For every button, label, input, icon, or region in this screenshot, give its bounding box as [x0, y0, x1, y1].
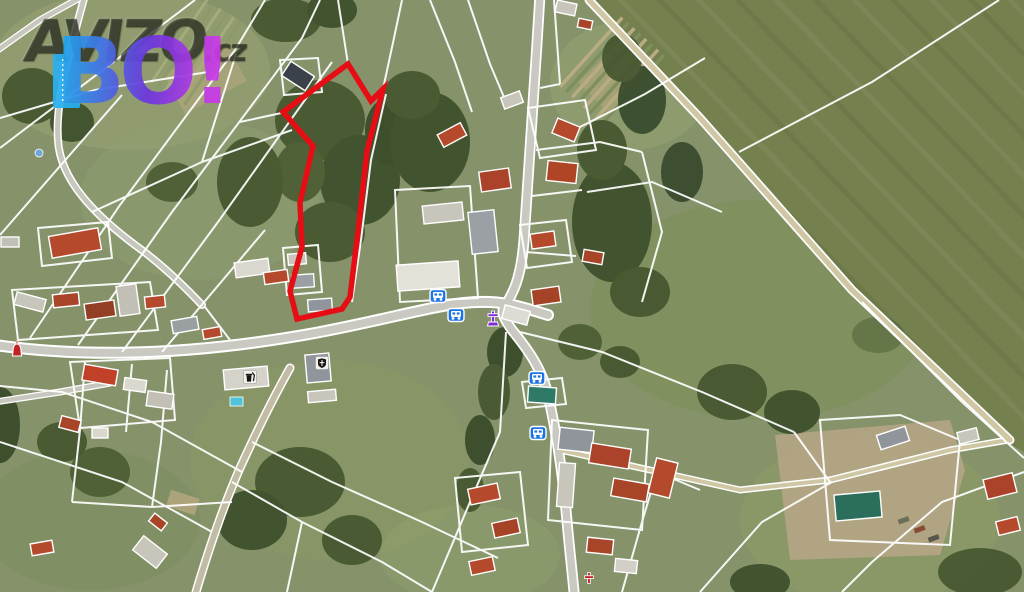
map-icon-bus-stop — [448, 309, 464, 322]
map-icon-waste-bin — [244, 371, 257, 384]
listing-map-screenshot: AVIZO.cz BO! — [0, 0, 1024, 592]
aerial-map-canvas[interactable] — [0, 0, 1024, 592]
map-icon-bus-stop — [530, 427, 546, 440]
map-icon-bus-stop — [430, 290, 446, 303]
map-icon-bus-stop — [529, 372, 545, 385]
map-icon-shield — [316, 357, 329, 370]
